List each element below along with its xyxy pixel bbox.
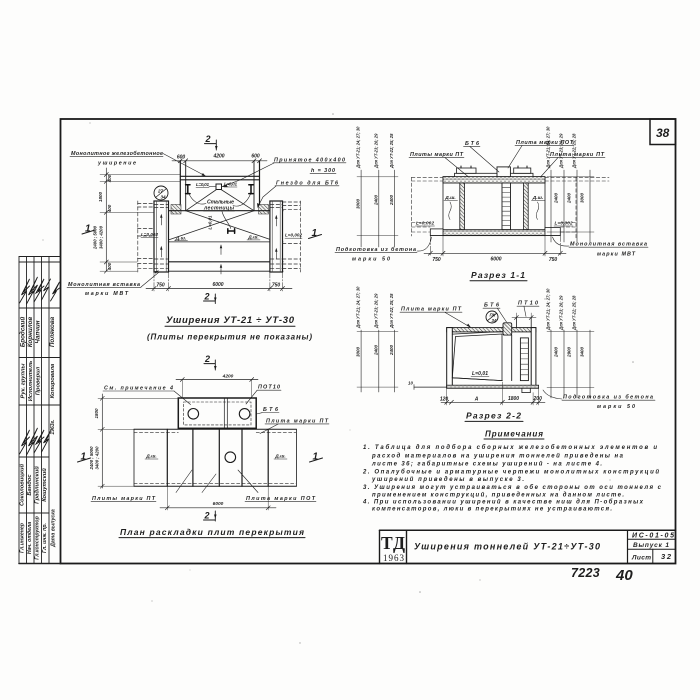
svg-text:400: 400 <box>107 204 112 213</box>
svg-text:1. Таблица для подбора сбор: 1. Таблица для подбора сборных железобет… <box>363 444 657 451</box>
svg-text:БТ6: БТ6 <box>263 407 279 413</box>
svg-text:Гл.инженер: Гл.инженер <box>20 523 26 553</box>
svg-text:Уширения УТ-21 ÷ УТ-30: Уширения УТ-21 ÷ УТ-30 <box>166 315 295 326</box>
svg-text:ИС-01-05: ИС-01-05 <box>632 533 674 540</box>
svg-text:4200: 4200 <box>212 154 224 160</box>
svg-text:40: 40 <box>615 567 633 584</box>
svg-text:2: 2 <box>205 134 211 144</box>
svg-text:3000: 3000 <box>580 192 585 203</box>
svg-text:34: 34 <box>492 318 497 323</box>
svg-text:3000: 3000 <box>356 346 361 357</box>
svg-text:3400: 3400 <box>580 346 585 357</box>
svg-text:750: 750 <box>549 257 558 263</box>
svg-text:См. примечание 4: См. примечание 4 <box>104 385 173 391</box>
svg-text:Гнездо для БТ6: Гнездо для БТ6 <box>276 180 339 186</box>
svg-text:2: 2 <box>204 292 210 302</box>
svg-text:1963г.: 1963г. <box>50 419 56 434</box>
svg-text:марки МВТ: марки МВТ <box>597 251 636 257</box>
svg-text:Выпуск 1: Выпуск 1 <box>633 542 669 549</box>
svg-text:Гл. инж. пр.: Гл. инж. пр. <box>42 523 48 553</box>
svg-text:750: 750 <box>272 282 281 288</box>
svg-text:Для УТ-21; 24; 27; 30: Для УТ-21; 24; 27; 30 <box>546 288 551 331</box>
svg-text:Нач. отдела: Нач. отдела <box>27 522 33 554</box>
svg-text:марки МВТ: марки МВТ <box>85 291 129 297</box>
svg-text:Д.ш.: Д.ш. <box>274 454 285 460</box>
svg-text:Д.ш.: Д.ш. <box>444 195 455 201</box>
svg-text:Градлинский: Градлинский <box>34 466 41 504</box>
svg-text:Уширения тоннелей УТ-21÷УТ-30: Уширения тоннелей УТ-21÷УТ-30 <box>414 542 600 552</box>
svg-text:2400: 2400 <box>554 192 559 204</box>
svg-text:6000: 6000 <box>490 256 501 262</box>
svg-text:Дата выпуска: Дата выпуска <box>51 509 57 548</box>
svg-text:Проверил: Проверил <box>36 366 42 395</box>
svg-text:2: 2 <box>204 354 210 364</box>
svg-text:расход материалов на уширен: расход материалов на уширения тоннелей п… <box>371 453 624 460</box>
svg-text:ТД: ТД <box>381 533 405 553</box>
svg-text:Чапчин: Чапчин <box>35 320 42 343</box>
svg-text:ПК: ПК <box>490 313 496 318</box>
svg-text:Плита марки ПТ: Плита марки ПТ <box>401 307 462 313</box>
svg-text:3400 ; 4200: 3400 ; 4200 <box>98 225 103 249</box>
svg-text:200: 200 <box>533 396 543 402</box>
svg-text:Для УТ-21; 24; 27; 30: Для УТ-21; 24; 27; 30 <box>356 126 361 169</box>
svg-text:Подготовка из бетона: Подготовка из бетона <box>336 246 416 253</box>
svg-text:Для УТ-23; 26; 29: Для УТ-23; 26; 29 <box>559 133 564 169</box>
svg-text:Разрез 1-1: Разрез 1-1 <box>471 270 525 280</box>
svg-text:1800: 1800 <box>508 396 519 402</box>
svg-text:2400 ; 5000: 2400 ; 5000 <box>93 225 98 250</box>
svg-text:3400 ; 4200: 3400 ; 4200 <box>94 446 99 470</box>
svg-text:Стальные: Стальные <box>207 200 234 206</box>
svg-text:Плита марки ПТ: Плита марки ПТ <box>266 418 329 424</box>
svg-text:L=0,01: L=0,01 <box>196 182 209 187</box>
svg-text:2400: 2400 <box>567 192 572 204</box>
svg-text:Исполнитель: Исполнитель <box>28 360 34 401</box>
svg-text:600: 600 <box>251 154 260 160</box>
svg-text:2: 2 <box>204 511 210 521</box>
svg-text:7223: 7223 <box>571 566 600 580</box>
svg-text:1800: 1800 <box>98 191 103 202</box>
svg-text:6000: 6000 <box>212 282 223 288</box>
svg-text:2400: 2400 <box>389 194 394 206</box>
svg-text:2400: 2400 <box>373 194 378 206</box>
svg-text:Для УТ-22; 25; 28: Для УТ-22; 25; 28 <box>572 295 577 331</box>
svg-text:2400 ; 5000: 2400 ; 5000 <box>89 446 94 471</box>
svg-text:10: 10 <box>408 381 413 386</box>
svg-text:120: 120 <box>440 397 449 403</box>
svg-text:лестницы: лестницы <box>203 206 235 212</box>
svg-text:Д.ш.: Д.ш. <box>532 195 543 201</box>
svg-text:4. При использовании уширени: 4. При использовании уширений в качестве… <box>362 499 644 506</box>
svg-text:А: А <box>474 397 479 403</box>
svg-text:Монолитная вставка: Монолитная вставка <box>68 282 140 288</box>
svg-text:Копировала: Копировала <box>50 363 56 398</box>
svg-text:34: 34 <box>161 195 167 200</box>
svg-text:Корнилов: Корнилов <box>27 317 34 348</box>
svg-text:Плита марки ПОТ: Плита марки ПОТ <box>246 496 316 502</box>
svg-text:Примечания: Примечания <box>485 430 543 439</box>
svg-text:Гл.конструктор: Гл.конструктор <box>35 516 41 560</box>
svg-text:4200: 4200 <box>222 373 234 379</box>
svg-text:(Плиты перекрытия не показаны): (Плиты перекрытия не показаны) <box>147 333 312 342</box>
svg-text:Для УТ-22; 25; 28: Для УТ-22; 25; 28 <box>389 133 394 169</box>
svg-text:2900: 2900 <box>567 346 572 358</box>
svg-text:3000: 3000 <box>356 198 361 209</box>
svg-text:400: 400 <box>107 262 112 271</box>
svg-text:Плиты марки ПТ: Плиты марки ПТ <box>92 496 156 502</box>
svg-text:уширение: уширение <box>97 160 136 166</box>
svg-text:марки 50: марки 50 <box>352 256 390 262</box>
svg-text:32: 32 <box>661 552 672 561</box>
svg-text:2400: 2400 <box>373 344 378 356</box>
svg-text:Полякова: Полякова <box>49 316 56 347</box>
svg-text:3. Уширения могут устраивать: 3. Уширения могут устраиваться в обе сто… <box>363 484 662 491</box>
svg-text:Для УТ-23; 26; 29: Для УТ-23; 26; 29 <box>559 295 564 331</box>
svg-text:h = 300: h = 300 <box>311 168 335 174</box>
svg-text:2400: 2400 <box>389 344 394 356</box>
svg-text:Кошутский: Кошутский <box>41 468 48 502</box>
svg-text:Разрез 2-2: Разрез 2-2 <box>466 411 521 421</box>
svg-text:Монолитная вставка: Монолитная вставка <box>570 242 647 248</box>
svg-text:Лист: Лист <box>631 555 651 562</box>
svg-text:Для УТ-22; 25; 28: Для УТ-22; 25; 28 <box>572 133 577 169</box>
svg-text:листе 36; габаритные схемы: листе 36; габаритные схемы уширений - на… <box>371 461 602 468</box>
svg-text:Для УТ-21; 24; 27; 30: Для УТ-21; 24; 27; 30 <box>356 286 361 329</box>
svg-text:L=0,002: L=0,002 <box>141 232 158 237</box>
svg-text:Принятое 400х400: Принятое 400х400 <box>274 157 345 163</box>
svg-text:Соколовицкий: Соколовицкий <box>19 464 26 507</box>
svg-text:Для УТ-21; 24; 27; 30: Для УТ-21; 24; 27; 30 <box>546 126 551 169</box>
svg-text:L=0,002: L=0,002 <box>285 233 302 238</box>
svg-text:БТ6: БТ6 <box>465 141 480 147</box>
svg-text:750: 750 <box>156 282 165 288</box>
svg-text:Монолитное железобетонное: Монолитное железобетонное <box>71 150 163 157</box>
svg-text:L=0,01: L=0,01 <box>208 215 213 230</box>
svg-text:6000: 6000 <box>213 501 224 507</box>
svg-text:L=0,002: L=0,002 <box>416 221 434 226</box>
svg-text:L=0,01: L=0,01 <box>472 371 488 377</box>
svg-text:Для УТ-23; 26; 29: Для УТ-23; 26; 29 <box>373 133 378 169</box>
svg-text:38: 38 <box>656 126 670 140</box>
svg-text:Для УТ-22; 25; 28: Для УТ-22; 25; 28 <box>389 293 394 329</box>
svg-text:БТ6: БТ6 <box>484 303 500 309</box>
svg-text:Д.ш.: Д.ш. <box>145 454 156 460</box>
svg-text:600: 600 <box>177 155 186 161</box>
svg-text:марки 50: марки 50 <box>597 404 635 410</box>
svg-text:2. Опалубочные и арматурные: 2. Опалубочные и арматурные чертежи моно… <box>362 469 659 476</box>
svg-text:компенсаторов, люки в перек: компенсаторов, люки в перекрытиях не уст… <box>372 507 612 513</box>
svg-text:1800: 1800 <box>94 408 99 419</box>
svg-text:Плиты марки ПТ: Плиты марки ПТ <box>410 152 464 158</box>
svg-text:Для УТ-23; 26; 29: Для УТ-23; 26; 29 <box>373 293 378 329</box>
svg-text:Бандос: Бандос <box>27 474 33 496</box>
svg-text:27: 27 <box>157 189 164 194</box>
svg-text:750: 750 <box>432 257 441 263</box>
svg-text:Бродский: Бродский <box>19 317 27 348</box>
svg-text:План раскладки плит перекры: План раскладки плит перекрытия <box>120 527 304 537</box>
svg-text:2400: 2400 <box>554 346 559 358</box>
svg-text:Рук. группы: Рук. группы <box>21 363 27 398</box>
svg-text:применением конструкций, при: применением конструкций, приведенных на … <box>372 492 624 499</box>
svg-text:1963: 1963 <box>383 553 405 563</box>
svg-text:ПОТ10: ПОТ10 <box>258 385 280 391</box>
svg-text:400: 400 <box>107 174 112 183</box>
